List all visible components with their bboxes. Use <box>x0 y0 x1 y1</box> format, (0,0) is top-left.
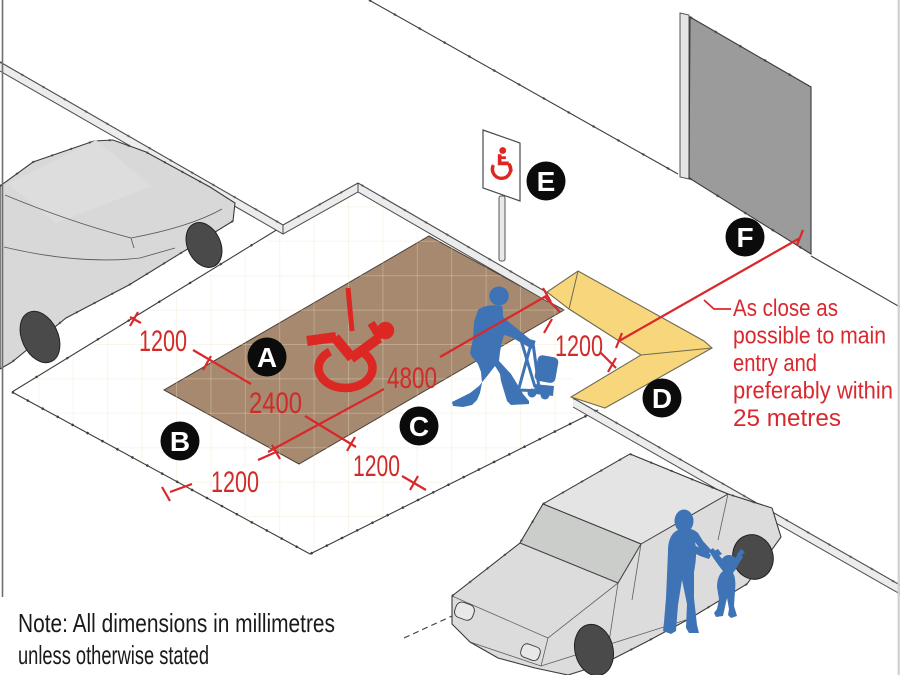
svg-text:1200: 1200 <box>139 325 187 358</box>
svg-text:25 metres: 25 metres <box>733 405 841 432</box>
svg-text:2400: 2400 <box>249 387 302 420</box>
svg-text:possible to main: possible to main <box>733 323 886 350</box>
svg-text:unless otherwise stated: unless otherwise stated <box>18 640 209 670</box>
svg-text:Note: All dimensions in millim: Note: All dimensions in millimetres <box>18 608 335 638</box>
svg-text:B: B <box>170 426 190 457</box>
svg-text:entry and: entry and <box>733 350 817 377</box>
svg-text:D: D <box>652 383 672 414</box>
svg-text:1200: 1200 <box>211 466 259 499</box>
svg-text:1200: 1200 <box>555 330 603 363</box>
svg-text:E: E <box>537 166 556 197</box>
svg-text:A: A <box>257 342 277 373</box>
svg-text:As close as: As close as <box>733 295 838 322</box>
svg-text:preferably within: preferably within <box>733 378 893 405</box>
svg-text:C: C <box>409 411 429 442</box>
svg-text:4800: 4800 <box>387 362 437 395</box>
svg-text:1200: 1200 <box>353 450 400 483</box>
svg-text:F: F <box>736 222 753 253</box>
